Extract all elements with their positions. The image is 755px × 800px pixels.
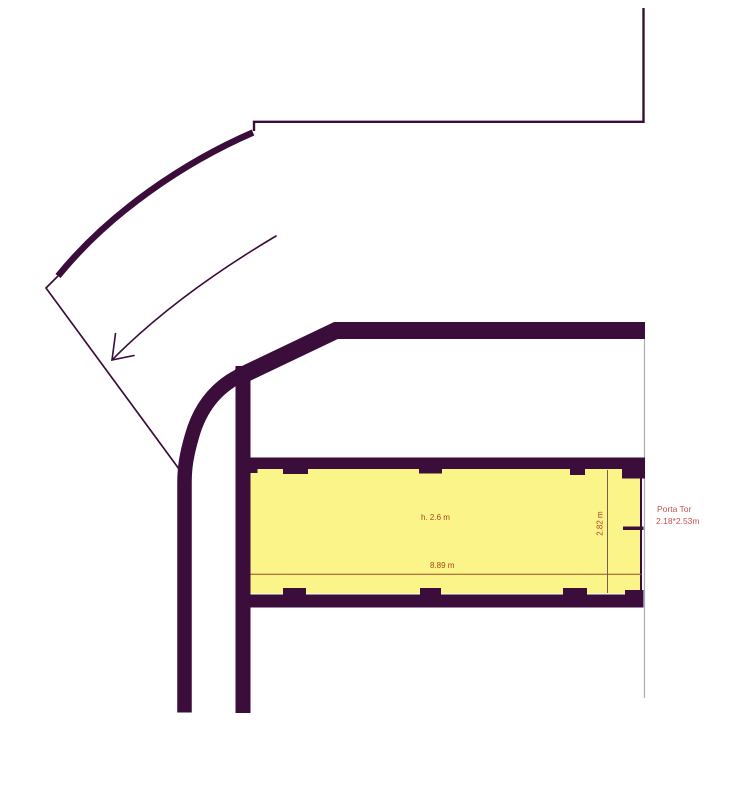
wall-hatch-tick xyxy=(251,458,258,474)
wall-hatch-tick xyxy=(625,590,644,595)
garage-wall-top-corner-block xyxy=(622,458,645,479)
wall-hatch-tick xyxy=(563,588,587,595)
room-height-label: h. 2.6 m xyxy=(421,513,450,522)
site-boundary-line-top xyxy=(254,8,644,131)
wall-hatch-tick xyxy=(419,465,442,474)
door-dimensions-label: 2.18*2.53m xyxy=(656,516,699,526)
building-wall-inner-left xyxy=(236,366,251,713)
wall-hatch-tick xyxy=(420,588,441,595)
wall-hatch-tick xyxy=(283,588,306,595)
driveway-arrow xyxy=(112,236,276,360)
room-depth-label: 2.82 m xyxy=(596,504,605,544)
building-wall-top xyxy=(239,331,646,378)
site-boundary-line-left xyxy=(46,276,179,469)
floor-plan-drawing xyxy=(0,0,755,800)
building-wall-outer-left xyxy=(185,376,241,713)
wall-hatch-tick xyxy=(283,468,308,475)
floor-plan-canvas: h. 2.6 m 8.89 m 2.82 m Porta Tor 2.18*2.… xyxy=(0,0,755,800)
driveway-arrow-shaft xyxy=(112,236,276,360)
room-width-label: 8.89 m xyxy=(430,561,454,570)
site-wall-curved xyxy=(58,133,253,277)
door-title-label: Porta Tor xyxy=(657,504,691,514)
garage-wall-bottom xyxy=(251,595,644,608)
garage-wall-top xyxy=(251,458,646,470)
wall-hatch-tick xyxy=(570,465,585,475)
